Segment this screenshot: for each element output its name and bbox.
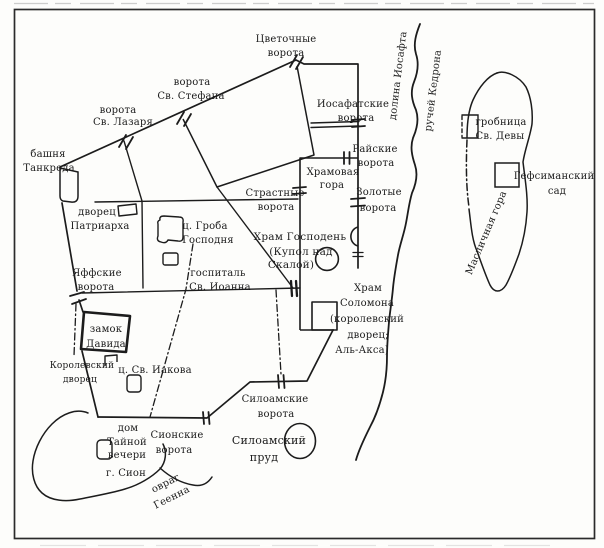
- label-tancred-tower-1: башня: [30, 149, 65, 160]
- label-temple-of-lord-3: Скалой): [268, 259, 314, 271]
- labels: Цветочные ворота ворота Св. Стефана воро…: [23, 31, 594, 512]
- map-page: Цветочные ворота ворота Св. Стефана воро…: [0, 0, 604, 548]
- label-tancred-tower-2: Танкреда: [23, 163, 75, 174]
- label-gethsemane-2: сад: [548, 186, 566, 197]
- label-stephen-gate-2: Св. Стефана: [157, 91, 224, 102]
- label-solomon-temple-1: Храм: [354, 283, 382, 294]
- label-david-castle-1: замок: [90, 324, 123, 335]
- label-patriarch-palace-2: Патриарха: [70, 221, 129, 232]
- label-siloam-pool-1: Силоамский: [232, 434, 306, 447]
- label-stephen-gate-1: ворота: [174, 77, 211, 88]
- label-royal-palace-2: дворец: [63, 375, 97, 385]
- label-zion-gate-1: Сионские: [150, 430, 203, 441]
- label-patriarch-palace-1: дворец: [78, 207, 116, 218]
- label-golden-gate-1: Золотые: [356, 187, 401, 198]
- label-temple-of-lord-1: Храм Господень: [254, 231, 347, 243]
- olives-outline-dashed: [466, 140, 469, 207]
- label-josaphat-valley: долина Иосафта: [388, 31, 410, 121]
- label-mount-zion: г. Сион: [106, 468, 146, 479]
- label-siloam-gate-2: ворота: [258, 409, 295, 420]
- label-david-castle-2: Давида: [86, 339, 126, 350]
- st-james-building: [127, 375, 141, 392]
- label-flower-gate-2: ворота: [268, 48, 305, 59]
- label-gethsemane-1: Гефсиманский: [514, 171, 595, 182]
- label-last-supper-3: вечери: [108, 450, 146, 461]
- label-last-supper-1: дом: [118, 423, 139, 434]
- label-paradise-gate-2: ворота: [358, 158, 395, 169]
- label-lazarus-gate-2: Св. Лазаря: [93, 117, 153, 128]
- label-jaffa-gate-2: ворота: [78, 282, 115, 293]
- label-josaphat-gate-2: ворота: [338, 113, 375, 124]
- kidron-stream: [356, 24, 420, 460]
- label-solomon-temple-2: Соломона: [340, 298, 394, 309]
- olives-outline-upper: [467, 73, 497, 138]
- label-solomon-temple-3: (королевский: [330, 314, 404, 325]
- street-sepulchre-zion: [150, 244, 193, 417]
- jerusalem-map: Цветочные ворота ворота Св. Стефана воро…: [0, 0, 604, 548]
- label-hospital-1: госпиталь: [190, 268, 246, 279]
- holy-sepulchre-building: [157, 216, 183, 243]
- label-last-supper-2: Тайной: [107, 437, 147, 448]
- label-royal-palace-1: Королевский: [50, 361, 115, 371]
- label-temple-mount-1: Храмовая: [307, 167, 360, 178]
- label-virgin-tomb-1: гробница: [475, 117, 526, 128]
- label-temple-mount-2: гора: [320, 180, 344, 191]
- label-virgin-tomb-2: Св. Девы: [476, 131, 525, 142]
- patriarch-palace-building: [118, 204, 137, 216]
- east-wall-apse: [351, 227, 358, 246]
- label-hospital-2: Св. Иоанна: [189, 282, 251, 293]
- street-jaffa-south: [74, 304, 76, 356]
- label-solomon-temple-5: Аль-Акса): [335, 345, 389, 356]
- sepulchre-annex-building: [163, 253, 178, 265]
- label-solomon-temple-4: дворец;: [347, 330, 388, 341]
- gate-stephen: [177, 112, 191, 126]
- label-passion-gate-1: Страстные: [245, 188, 304, 199]
- label-golden-gate-2: ворота: [360, 203, 397, 214]
- gate-jaffa: [70, 292, 86, 304]
- label-jaffa-gate-1: Яффские: [72, 268, 122, 279]
- label-holy-sepulchre-2: Господня: [182, 235, 234, 246]
- label-josaphat-gate-1: Иосафатские: [317, 99, 389, 110]
- label-holy-sepulchre-1: ц. Гроба: [182, 221, 227, 232]
- label-temple-of-lord-2: (Купол над: [269, 246, 333, 258]
- label-st-james: ц. Св. Иакова: [118, 365, 192, 376]
- label-siloam-pool-2: пруд: [250, 451, 278, 464]
- label-mount-of-olives: Масличная гора: [464, 189, 509, 276]
- street-siloam: [276, 290, 281, 374]
- label-kidron-brook: ручей Кедрона: [423, 49, 444, 132]
- label-lazarus-gate-1: ворота: [100, 105, 137, 116]
- kidron-stream-path: [356, 24, 420, 460]
- label-paradise-gate-1: Райские: [352, 144, 397, 155]
- label-zion-gate-2: ворота: [156, 445, 193, 456]
- label-passion-gate-2: ворота: [258, 202, 295, 213]
- label-flower-gate-1: Цветочные: [256, 34, 317, 45]
- label-siloam-gate-1: Силоамские: [242, 394, 309, 405]
